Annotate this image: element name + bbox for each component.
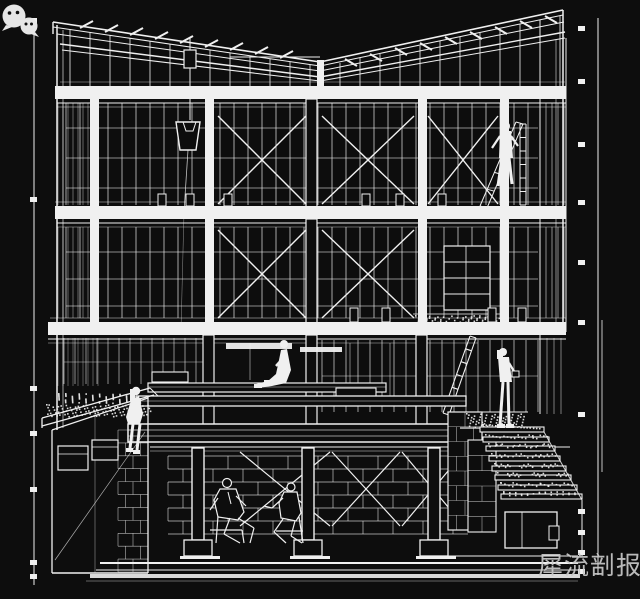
draw-rect xyxy=(290,556,330,559)
dimension-tick-left xyxy=(30,560,37,565)
floor-band-1 xyxy=(48,322,566,335)
stair-tread xyxy=(483,437,549,442)
stool-block xyxy=(350,308,358,322)
column xyxy=(205,99,214,207)
draw-line xyxy=(250,528,254,543)
column xyxy=(306,219,317,323)
stool-block xyxy=(396,194,404,206)
figure-stair-stander-body xyxy=(498,357,512,382)
hoist-block xyxy=(184,50,196,68)
sill-bar xyxy=(300,347,342,352)
column-footing xyxy=(184,540,212,556)
eave-band xyxy=(55,86,566,99)
column xyxy=(205,219,214,323)
dimension-tick-right xyxy=(578,320,585,325)
dimension-tick-right xyxy=(578,260,585,265)
dimension-tick-left xyxy=(30,386,37,391)
cross-brace xyxy=(428,116,498,204)
stool-block xyxy=(362,194,370,206)
figure-basement-left-torso xyxy=(214,489,244,520)
dimension-tick-right xyxy=(578,530,585,535)
draw-rect xyxy=(264,380,271,384)
stool-block xyxy=(518,308,526,322)
figure-climber-arm xyxy=(492,136,500,148)
draw-rect xyxy=(497,424,505,428)
cross-brace xyxy=(322,116,414,204)
dimension-tick-left xyxy=(30,197,37,202)
stool-block xyxy=(382,308,390,322)
dimension-tick-right xyxy=(578,200,585,205)
watermark-text: 犀流剖报 xyxy=(538,552,640,580)
column xyxy=(418,219,427,323)
figure-basement-left-head xyxy=(223,479,232,488)
stool-block xyxy=(438,194,446,206)
wall-ladder xyxy=(520,124,526,205)
draw-line xyxy=(224,518,230,534)
column xyxy=(500,99,509,207)
window-transoms-floor2 xyxy=(66,128,538,188)
dimension-tick-left xyxy=(30,431,37,436)
column xyxy=(90,99,99,207)
draw-line xyxy=(320,15,563,66)
draw-rect xyxy=(254,384,262,388)
column xyxy=(306,99,317,207)
figure-climber-leg xyxy=(509,158,512,184)
stool-block xyxy=(488,308,496,322)
stair-tread xyxy=(498,485,577,490)
draw-rect xyxy=(133,450,140,454)
dimension-tick-left xyxy=(30,574,37,579)
figure-stair-stander-leg xyxy=(508,382,509,425)
wechat-icon xyxy=(0,0,46,44)
section-drawing-page: 犀流剖报 xyxy=(0,0,640,599)
draw-line xyxy=(238,518,254,528)
stair-tread xyxy=(492,466,566,471)
draw-line xyxy=(320,22,564,71)
draw-rect xyxy=(512,371,519,377)
planter-box xyxy=(58,446,88,470)
cross-brace xyxy=(322,230,414,318)
figure-stair-stander-leg xyxy=(500,382,503,425)
basement-stone-wall xyxy=(168,456,468,534)
column xyxy=(500,219,509,323)
stair-tread xyxy=(501,494,582,499)
draw-line xyxy=(320,38,565,81)
dimension-tick-right xyxy=(578,509,585,514)
column xyxy=(90,219,99,323)
basement-column xyxy=(428,448,440,540)
column xyxy=(203,335,214,425)
dimension-tick-left xyxy=(30,487,37,492)
stair-base-door xyxy=(549,526,559,540)
draw-line xyxy=(181,212,184,330)
stool-block xyxy=(158,194,166,206)
right-wall-siding xyxy=(540,227,564,318)
dimension-tick-right xyxy=(578,79,585,84)
platform-block xyxy=(152,372,188,382)
draw-rect xyxy=(180,556,220,559)
basement-column xyxy=(192,448,204,540)
planter-box xyxy=(92,440,118,460)
floor-band-2 xyxy=(55,206,566,219)
figure-basement-right-torso xyxy=(279,492,301,521)
section-perspective-drawing xyxy=(0,0,640,599)
column-footing xyxy=(420,540,448,556)
column-footing xyxy=(294,540,322,556)
valley-post xyxy=(317,60,324,88)
figure-basement-right-head xyxy=(287,483,295,491)
dimension-tick-right xyxy=(578,26,585,31)
ground-slab-band xyxy=(90,574,580,578)
column xyxy=(418,99,427,207)
stool-block xyxy=(186,194,194,206)
draw-rect xyxy=(126,448,133,452)
basement-column xyxy=(302,448,314,540)
dimension-tick-right xyxy=(578,412,585,417)
dimension-tick-right xyxy=(578,142,585,147)
right-wall-siding xyxy=(540,103,564,205)
stair-tread xyxy=(486,446,555,451)
figure-platform-sitter-head xyxy=(280,340,288,348)
draw-line xyxy=(224,534,240,543)
right-wall-siding xyxy=(540,338,561,414)
stair-tread xyxy=(495,475,571,480)
ground-beam xyxy=(128,424,476,442)
column xyxy=(416,335,427,425)
stool-block xyxy=(224,194,232,206)
basement-brace xyxy=(332,452,400,526)
draw-rect xyxy=(506,424,514,428)
hoist-bucket xyxy=(176,122,200,150)
